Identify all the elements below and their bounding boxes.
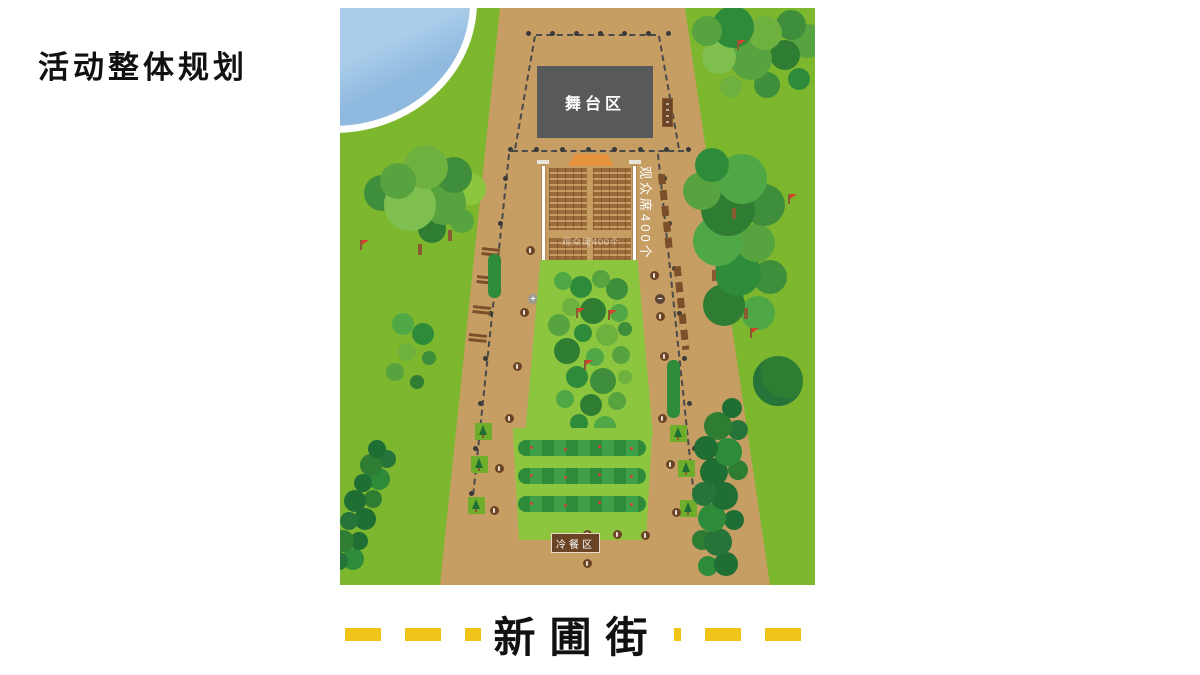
- path-marker-icon: [513, 362, 522, 371]
- site-plan-map: 舞台区 观众席400个 观众席400个 + −: [340, 8, 815, 585]
- path-marker-icon: [666, 460, 675, 469]
- boundary-dots: [526, 31, 531, 36]
- path-marker-icon: [495, 464, 504, 473]
- buffet-sign: 冷餐区: [551, 533, 600, 553]
- path-marker-icon: [650, 271, 659, 280]
- stage-area: 舞台区: [537, 66, 653, 138]
- tree-trunk-icon: [418, 244, 422, 255]
- flag-icon: [576, 308, 578, 318]
- shrub-row: [518, 468, 646, 484]
- tree-cluster-icon: [392, 313, 414, 335]
- path-marker-icon: [658, 414, 667, 423]
- street: 新圃街: [345, 608, 810, 660]
- path-marker-icon: [583, 559, 592, 568]
- seating-block: [549, 168, 587, 230]
- path-marker-icon: [520, 308, 529, 317]
- flag-icon: [584, 360, 586, 370]
- boundary-dots: [508, 147, 513, 152]
- stage-boundary-top: [536, 34, 656, 36]
- tree-trunk-icon: [448, 230, 452, 241]
- audience-count-label: 观众席400个: [640, 166, 656, 278]
- conifer-strip-icon: [722, 398, 742, 418]
- pole-label: [629, 160, 641, 164]
- tree-trunk-icon: [732, 208, 736, 219]
- tree-icon: [753, 356, 803, 406]
- page-title: 活动整体规划: [38, 42, 248, 87]
- stage-ramp: [568, 154, 614, 166]
- path-marker-icon: [672, 508, 681, 517]
- path-marker-icon: [656, 312, 665, 321]
- boundary-dots: [503, 176, 508, 181]
- stage-label: 舞台区: [565, 90, 625, 114]
- flower-dots-icon: [530, 446, 533, 449]
- plus-marker-icon: +: [528, 294, 538, 304]
- pond-water: [340, 8, 477, 133]
- street-name: 新圃街: [345, 608, 810, 660]
- planter-square-icon: [678, 460, 695, 477]
- planter-square-icon: [670, 425, 687, 442]
- path-marker-icon: [505, 414, 514, 423]
- shrub-strip: [488, 254, 501, 298]
- tree-cluster-icon: [692, 16, 722, 46]
- audience-watermark: 观众席400个: [546, 235, 636, 248]
- slide: 活动整体规划 舞台区 观众席400个 观众席400个 + −: [0, 0, 1200, 675]
- path-marker-icon: [526, 246, 535, 255]
- conifer-strip-icon: [368, 440, 386, 458]
- tree-trunk-icon: [712, 270, 716, 281]
- shrub-row: [518, 440, 646, 456]
- shrub-row: [518, 496, 646, 512]
- flag-icon: [737, 40, 739, 50]
- flower-dots-icon: [530, 502, 533, 505]
- path-marker-icon: [613, 530, 622, 539]
- minus-marker-icon: −: [655, 294, 665, 304]
- path-marker-icon: [641, 531, 650, 540]
- path-marker-icon: [490, 506, 499, 515]
- seating-block: [593, 168, 631, 230]
- pole-label: [537, 160, 549, 164]
- tree-cluster-icon: [695, 148, 729, 182]
- tree-trunk-icon: [744, 308, 748, 319]
- flag-icon: [608, 310, 610, 320]
- tree-cluster-icon: [554, 272, 572, 290]
- planter-square-icon: [471, 456, 488, 473]
- street-name-label: 新圃街: [481, 604, 673, 665]
- planter-square-icon: [680, 500, 697, 517]
- path-marker-icon: [660, 352, 669, 361]
- planter-square-icon: [475, 423, 492, 440]
- flag-icon: [788, 194, 790, 204]
- buffet-sign-label: 冷餐区: [556, 536, 595, 551]
- flower-dots-icon: [530, 474, 533, 477]
- flag-icon: [360, 240, 362, 250]
- flag-icon: [750, 328, 752, 338]
- tree-cluster-icon: [380, 163, 416, 199]
- shrub-strip: [667, 360, 680, 418]
- stage-side-sign: [662, 98, 673, 127]
- stage-boundary-bottom: [512, 150, 684, 152]
- planter-square-icon: [468, 497, 485, 514]
